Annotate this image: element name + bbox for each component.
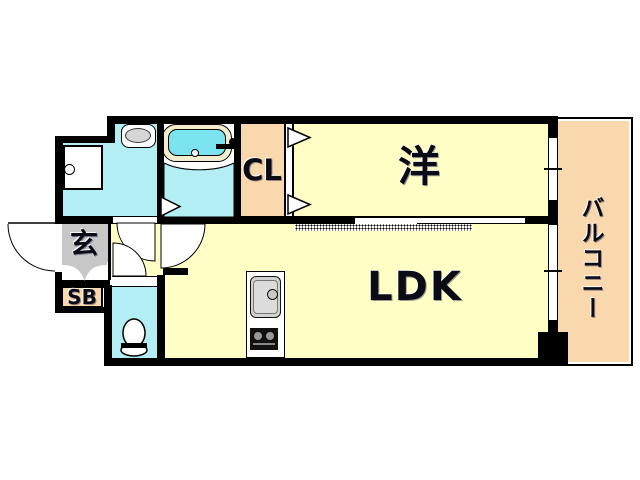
entrance-step-mark: [62, 262, 107, 281]
closet-label: CL: [239, 156, 285, 185]
ldk-label: LDK: [345, 267, 485, 307]
shoe-box-label: SB: [61, 287, 103, 307]
toilet-seat-band: [121, 343, 147, 348]
folding-door-icon: [288, 195, 310, 214]
folding-door-icon: [288, 128, 310, 147]
balcony-label: バルコニー: [578, 178, 601, 338]
western-room-label: 洋: [389, 146, 449, 188]
floor-plan: 洋 LDK CL 玄 SB バルコニー: [0, 0, 640, 480]
ldk-door-swing: [161, 224, 205, 268]
entrance-label: 玄: [69, 230, 99, 258]
toilet-icon: [123, 319, 145, 347]
entrance-door-swing: [8, 224, 55, 271]
